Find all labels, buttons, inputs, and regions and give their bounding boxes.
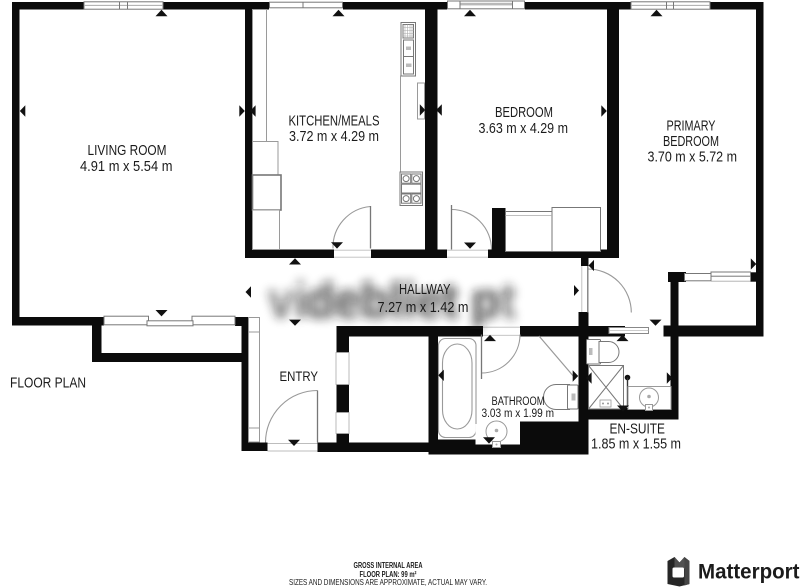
svg-text:FLOOR PLAN: FLOOR PLAN [10, 375, 86, 392]
svg-text:ENTRY: ENTRY [280, 368, 319, 384]
svg-text:Matterport: Matterport [698, 561, 800, 584]
svg-text:3.72 m x 4.29 m: 3.72 m x 4.29 m [289, 128, 379, 145]
svg-text:LIVING ROOM: LIVING ROOM [88, 142, 167, 159]
svg-text:1.85 m x 1.55 m: 1.85 m x 1.55 m [591, 436, 681, 453]
svg-text:HALLWAY: HALLWAY [399, 281, 451, 298]
svg-text:7.27 m x 1.42 m: 7.27 m x 1.42 m [378, 299, 469, 316]
svg-text:3.70 m x 5.72 m: 3.70 m x 5.72 m [648, 149, 738, 166]
svg-text:3.63 m x 4.29 m: 3.63 m x 4.29 m [479, 120, 569, 137]
svg-text:PRIMARY: PRIMARY [667, 118, 716, 135]
svg-text:BATHROOM: BATHROOM [492, 396, 545, 408]
svg-text:BEDROOM: BEDROOM [495, 104, 553, 121]
svg-text:SIZES AND DIMENSIONS ARE APPRO: SIZES AND DIMENSIONS ARE APPROXIMATE, AC… [289, 578, 487, 587]
svg-text:3.03 m x 1.99 m: 3.03 m x 1.99 m [482, 408, 555, 420]
svg-text:GROSS INTERNAL AREA: GROSS INTERNAL AREA [354, 561, 423, 570]
svg-text:KITCHEN/MEALS: KITCHEN/MEALS [289, 113, 380, 130]
svg-text:4.91 m x 5.54 m: 4.91 m x 5.54 m [80, 158, 173, 175]
svg-text:BEDROOM: BEDROOM [663, 133, 719, 150]
